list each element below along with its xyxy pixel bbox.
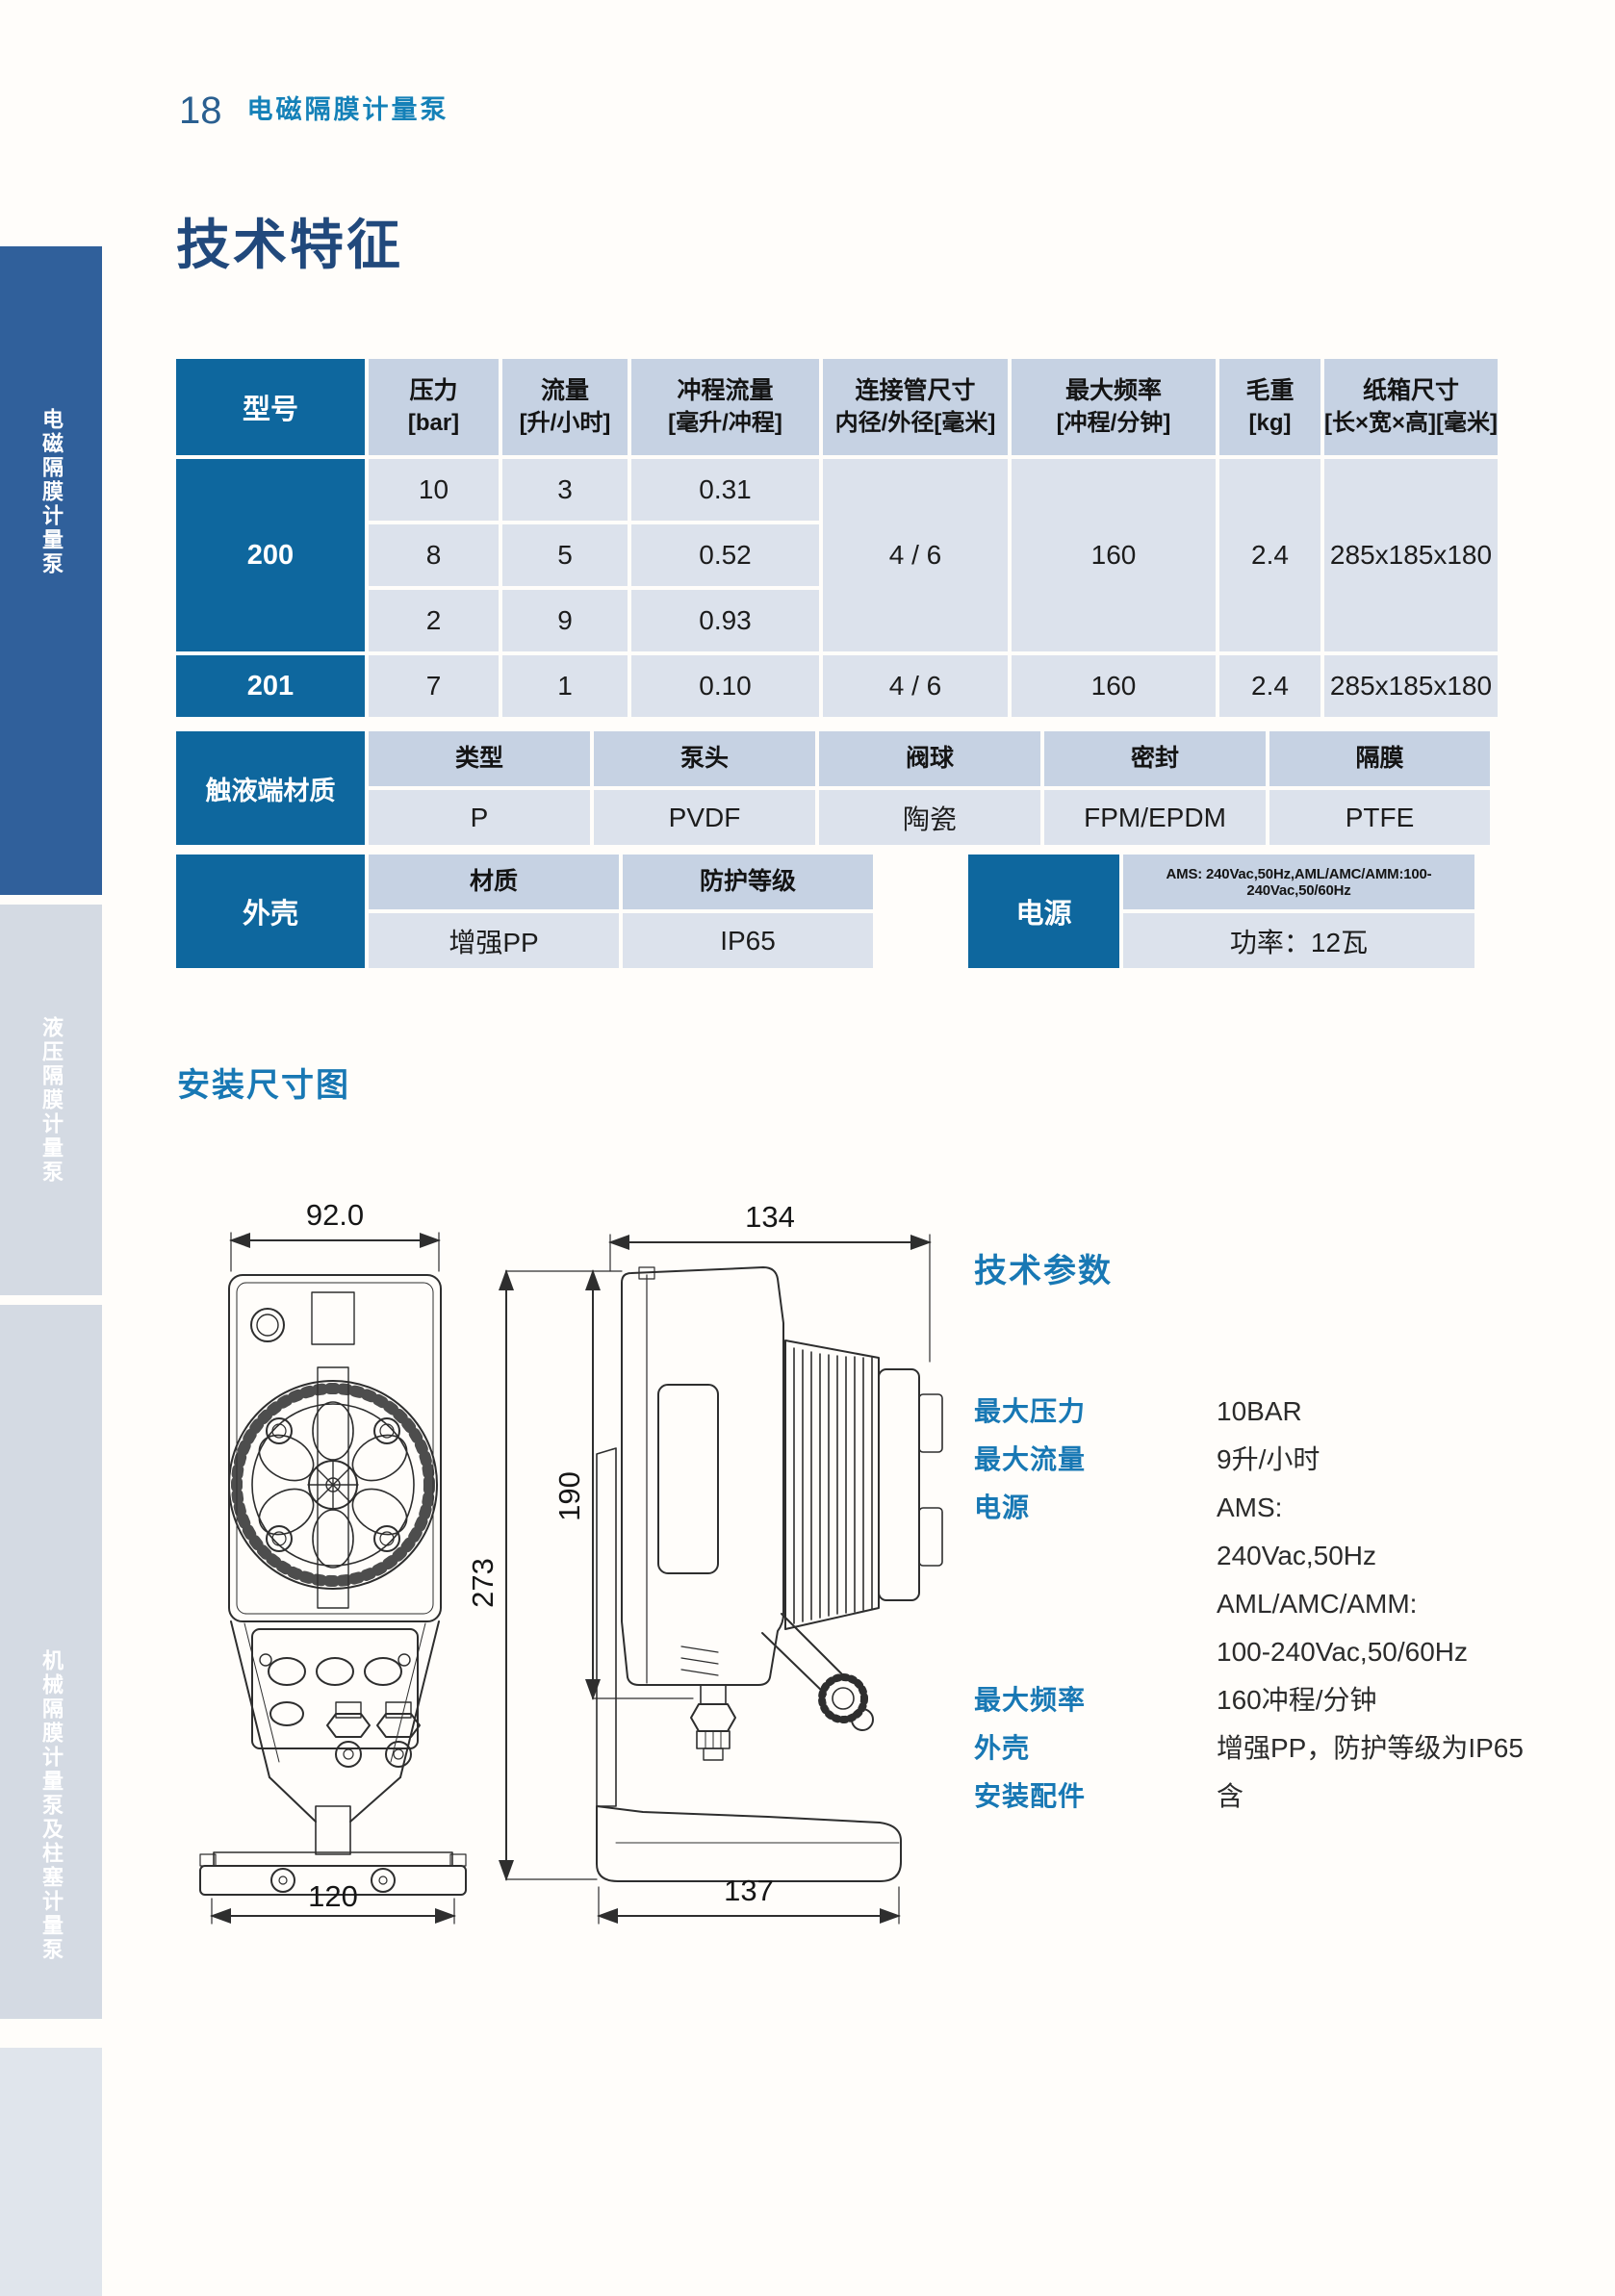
power-label: 电源: [968, 855, 1119, 968]
materials-value-diaphragm: PTFE: [1269, 790, 1490, 845]
page-title: 技术特征: [176, 202, 403, 280]
spec-header-stroke-flow: 冲程流量[毫升/冲程]: [631, 359, 819, 455]
cell-weight: 2.4: [1219, 655, 1320, 717]
param-label: 最大压力: [974, 1388, 1217, 1436]
param-value: 160冲程/分钟: [1217, 1676, 1377, 1724]
tech-params-list: 最大压力 10BAR 最大流量 9升/小时 电源 AMS: 240Vac,50H…: [974, 1388, 1551, 1821]
param-value: 10BAR: [1217, 1388, 1302, 1436]
front-view-drawing: 92.0 120: [171, 1179, 499, 1929]
housing-value-material: 增强PP: [369, 913, 619, 968]
housing-section: 外壳 材质 防护等级 增强PP IP65: [172, 851, 877, 972]
power-table: 电源 AMS: 240Vac,50Hz,AML/AMC/AMM:100-240V…: [964, 851, 1478, 972]
list-item: 最大流量 9升/小时: [974, 1436, 1551, 1484]
cell-stroke: 0.10: [631, 655, 819, 717]
sidebar-tab-hydraulic-pumps: 液压隔膜计量泵: [0, 905, 102, 1295]
materials-header-type: 类型: [369, 731, 590, 786]
materials-label: 触液端材质: [176, 731, 365, 845]
materials-value-type: P: [369, 790, 590, 845]
housing-header-material: 材质: [369, 855, 619, 909]
dim-side-top-width: 134: [745, 1200, 795, 1234]
model-200-cell: 200: [176, 459, 365, 651]
side-view-drawing: 134 273 190 137: [450, 1179, 951, 1929]
drawing-section-title: 安装尺寸图: [177, 1059, 350, 1106]
param-value: 增强PP，防护等级为IP65: [1217, 1724, 1524, 1773]
spec-header-weight: 毛重[kg]: [1219, 359, 1320, 455]
param-label: 外壳: [974, 1724, 1217, 1773]
cell-pipe: 4 / 6: [823, 655, 1008, 717]
materials-header-diaphragm: 隔膜: [1269, 731, 1490, 786]
materials-value-seal: FPM/EPDM: [1044, 790, 1266, 845]
materials-value-pump-head: PVDF: [594, 790, 815, 845]
cell-weight: 2.4: [1219, 459, 1320, 651]
sidebar-tab-label: 电磁隔膜计量泵: [36, 408, 66, 895]
housing-header-protection: 防护等级: [623, 855, 873, 909]
cell-pipe: 4 / 6: [823, 459, 1008, 651]
spec-header-carton: 纸箱尺寸[长×宽×高][毫米]: [1324, 359, 1498, 455]
list-item: 最大频率 160冲程/分钟: [974, 1676, 1551, 1724]
spec-table: 型号 压力[bar] 流量[升/小时] 冲程流量[毫升/冲程] 连接管尺寸内径/…: [172, 355, 1501, 721]
cell-freq: 160: [1012, 459, 1216, 651]
housing-label: 外壳: [176, 855, 365, 968]
param-label: 电源: [974, 1484, 1217, 1676]
materials-header-seal: 密封: [1044, 731, 1266, 786]
table-row: 201 7 1 0.10 4 / 6 160 2.4 285x185x180: [176, 655, 1498, 717]
page-header: 18 电磁隔膜计量泵: [179, 89, 449, 130]
spec-header-max-frequency: 最大频率[冲程/分钟]: [1012, 359, 1216, 455]
cell-freq: 160: [1012, 655, 1216, 717]
spec-header-pipe-size: 连接管尺寸内径/外径[毫米]: [823, 359, 1008, 455]
cell-carton: 285x185x180: [1324, 459, 1498, 651]
param-value-multiline: AMS: 240Vac,50Hz AML/AMC/AMM: 100-240Vac…: [1217, 1484, 1468, 1676]
list-item: 电源 AMS: 240Vac,50Hz AML/AMC/AMM: 100-240…: [974, 1484, 1551, 1676]
cell-pressure: 8: [369, 524, 499, 586]
cell-pressure: 2: [369, 590, 499, 651]
page-number: 18: [179, 91, 222, 130]
power-section: 电源 AMS: 240Vac,50Hz,AML/AMC/AMM:100-240V…: [964, 851, 1478, 972]
cell-flow: 1: [502, 655, 628, 717]
power-wattage: 功率：12瓦: [1123, 913, 1474, 968]
sidebar-tab-solenoid-pumps: 电磁隔膜计量泵: [0, 246, 102, 895]
cell-flow: 3: [502, 459, 628, 521]
tech-params-section: 技术参数 最大压力 10BAR 最大流量 9升/小时 电源 AMS: 240Va…: [974, 1244, 1551, 1821]
housing-table: 外壳 材质 防护等级 增强PP IP65: [172, 851, 877, 972]
sidebar-tab-label: 机械隔膜计量泵及柱塞计量泵: [36, 1649, 66, 2019]
materials-header-valve-ball: 阀球: [819, 731, 1040, 786]
sidebar-strip-bottom: [0, 2048, 102, 2296]
cell-carton: 285x185x180: [1324, 655, 1498, 717]
sidebar-tab-label: 液压隔膜计量泵: [36, 1016, 66, 1185]
cell-flow: 9: [502, 590, 628, 651]
spec-header-pressure: 压力[bar]: [369, 359, 499, 455]
spec-header-flow: 流量[升/小时]: [502, 359, 628, 455]
list-item: 最大压力 10BAR: [974, 1388, 1551, 1436]
dim-side-inner-height: 190: [552, 1471, 586, 1521]
model-201-cell: 201: [176, 655, 365, 717]
list-item: 安装配件 含: [974, 1773, 1551, 1821]
dim-side-total-height: 273: [466, 1558, 500, 1608]
materials-value-valve-ball: 陶瓷: [819, 790, 1040, 845]
param-label: 最大频率: [974, 1676, 1217, 1724]
param-label: 最大流量: [974, 1436, 1217, 1484]
cell-flow: 5: [502, 524, 628, 586]
sidebar-tab-mechanical-pumps: 机械隔膜计量泵及柱塞计量泵: [0, 1305, 102, 2019]
list-item: 外壳 增强PP，防护等级为IP65: [974, 1724, 1551, 1773]
dim-front-base-width: 120: [308, 1879, 358, 1913]
tech-params-title: 技术参数: [974, 1244, 1551, 1291]
dim-side-base-width: 137: [724, 1874, 774, 1907]
housing-value-protection: IP65: [623, 913, 873, 968]
power-voltage-spec: AMS: 240Vac,50Hz,AML/AMC/AMM:100-240Vac,…: [1123, 855, 1474, 909]
param-value: 9升/小时: [1217, 1436, 1320, 1484]
materials-header-pump-head: 泵头: [594, 731, 815, 786]
param-label: 安装配件: [974, 1773, 1217, 1821]
spec-table-section: 型号 压力[bar] 流量[升/小时] 冲程流量[毫升/冲程] 连接管尺寸内径/…: [172, 355, 1501, 721]
cell-pressure: 10: [369, 459, 499, 521]
materials-section: 触液端材质 类型 泵头 阀球 密封 隔膜 P PVDF 陶瓷 FPM/EPDM …: [172, 727, 1494, 849]
cell-pressure: 7: [369, 655, 499, 717]
table-row: 200 10 3 0.31 4 / 6 160 2.4 285x185x180: [176, 459, 1498, 521]
cell-stroke: 0.93: [631, 590, 819, 651]
dim-front-top-width: 92.0: [306, 1198, 364, 1232]
materials-table: 触液端材质 类型 泵头 阀球 密封 隔膜 P PVDF 陶瓷 FPM/EPDM …: [172, 727, 1494, 849]
page-header-text: 电磁隔膜计量泵: [247, 89, 449, 130]
catalog-page: 电磁隔膜计量泵 液压隔膜计量泵 机械隔膜计量泵及柱塞计量泵 18 电磁隔膜计量泵…: [0, 0, 1615, 2296]
param-value: 含: [1217, 1773, 1243, 1821]
cell-stroke: 0.31: [631, 459, 819, 521]
cell-stroke: 0.52: [631, 524, 819, 586]
spec-header-model: 型号: [176, 359, 365, 455]
